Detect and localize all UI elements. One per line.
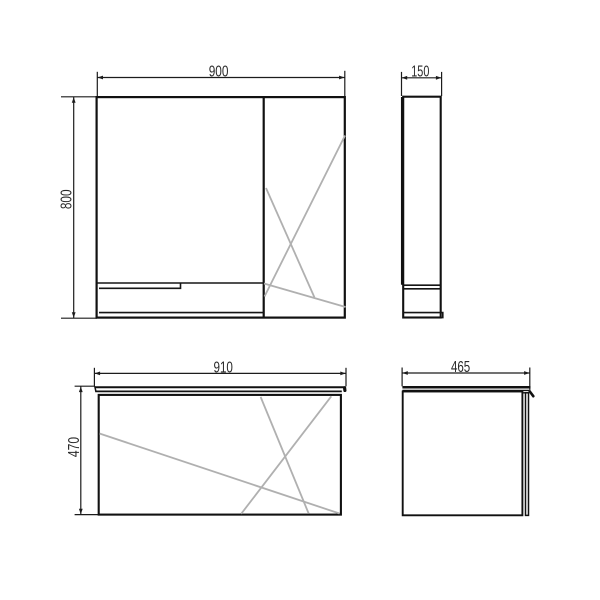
svg-text:900: 900	[209, 64, 229, 81]
svg-text:910: 910	[213, 359, 233, 376]
svg-text:465: 465	[451, 359, 470, 376]
svg-text:150: 150	[411, 64, 429, 81]
svg-text:470: 470	[66, 437, 83, 457]
svg-text:800: 800	[59, 189, 76, 209]
